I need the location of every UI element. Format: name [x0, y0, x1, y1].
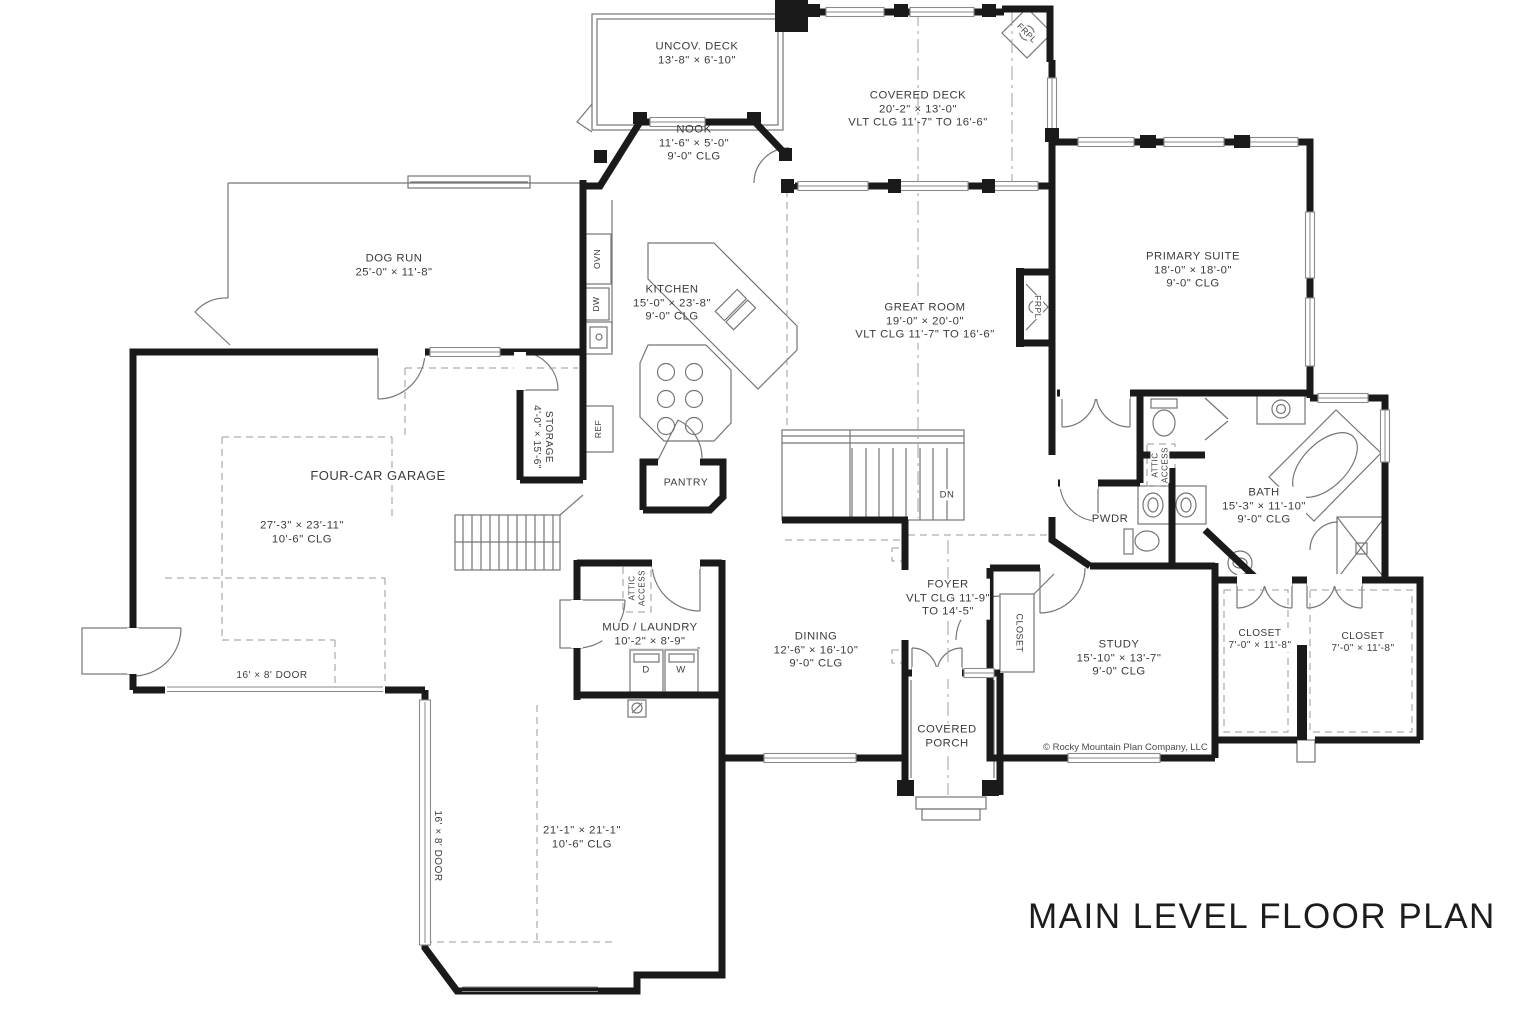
- appliance-ref: REF: [593, 420, 603, 439]
- room-dog-run: DOG RUN 25'-0" × 11'-8": [355, 252, 432, 279]
- room-garage2-dims: 21'-1" × 21'-1" 10'-6" CLG: [543, 824, 621, 851]
- appliance-dryer: D: [642, 664, 649, 675]
- label-frpl-deck: FRPL: [1015, 21, 1039, 45]
- label-frpl-great: FRPL: [1033, 295, 1043, 319]
- room-garage-name: FOUR-CAR GARAGE: [310, 468, 445, 484]
- room-labels: UNCOV. DECK 13'-8" × 6'-10"COVERED DECK …: [0, 0, 1536, 1030]
- room-study: STUDY 15'-10" × 13'-7" 9'-0" CLG: [1077, 639, 1162, 680]
- room-closet-right: CLOSET 7'-0" × 11'-8": [1331, 631, 1394, 655]
- label-attic-access-bath: ATTIC ACCESS: [1150, 447, 1169, 483]
- room-covered-porch: COVERED PORCH: [917, 723, 976, 750]
- label-attic-access-mud: ATTIC ACCESS: [627, 570, 646, 606]
- room-uncov-deck: UNCOV. DECK 13'-8" × 6'-10": [656, 40, 739, 67]
- appliance-ovn: OVN: [592, 249, 602, 269]
- room-mud-laundry: MUD / LAUNDRY 10'-2" × 8'-9": [602, 621, 697, 648]
- appliance-dw: DW: [591, 296, 601, 311]
- floorplan-canvas: UNCOV. DECK 13'-8" × 6'-10"COVERED DECK …: [0, 0, 1536, 1030]
- label-garage2-door: 16' × 8' DOOR: [431, 810, 443, 881]
- room-pwdr: PWDR: [1092, 513, 1129, 527]
- room-dining: DINING 12'-6" × 16'-10" 9'-0" CLG: [774, 631, 859, 672]
- room-primary-suite: PRIMARY SUITE 18'-0" × 18'-0" 9'-0" CLG: [1146, 251, 1240, 292]
- room-storage: STORAGE 4'-0" × 15'-6": [530, 405, 554, 469]
- plan-title: MAIN LEVEL FLOOR PLAN: [1028, 897, 1496, 937]
- room-closet-left: CLOSET 7'-0" × 11'-8": [1228, 628, 1291, 652]
- copyright-notice: © Rocky Mountain Plan Company, LLC: [1043, 742, 1208, 753]
- room-bath: BATH 15'-3" × 11'-10" 9'-0" CLG: [1222, 487, 1306, 528]
- room-nook: NOOK 11'-6" × 5'-0" 9'-0" CLG: [659, 124, 729, 165]
- room-covered-deck: COVERED DECK 20'-2" × 13'-0" VLT CLG 11'…: [848, 90, 987, 131]
- appliance-washer: W: [676, 664, 685, 675]
- label-dn: DN: [940, 489, 955, 500]
- label-closet-foyer: CLOSET: [1014, 613, 1025, 652]
- room-pantry: PANTRY: [664, 477, 709, 490]
- room-garage-dims: 27'-3" × 23'-11" 10'-6" CLG: [260, 519, 344, 546]
- room-foyer: FOYER VLT CLG 11'-9" TO 14'-5": [906, 579, 990, 620]
- room-kitchen: KITCHEN 15'-0" × 23'-8" 9'-0" CLG: [633, 284, 711, 325]
- label-garage-door: 16' × 8' DOOR: [236, 670, 307, 682]
- room-great-room: GREAT ROOM 19'-0" × 20'-0" VLT CLG 11'-7…: [855, 302, 994, 343]
